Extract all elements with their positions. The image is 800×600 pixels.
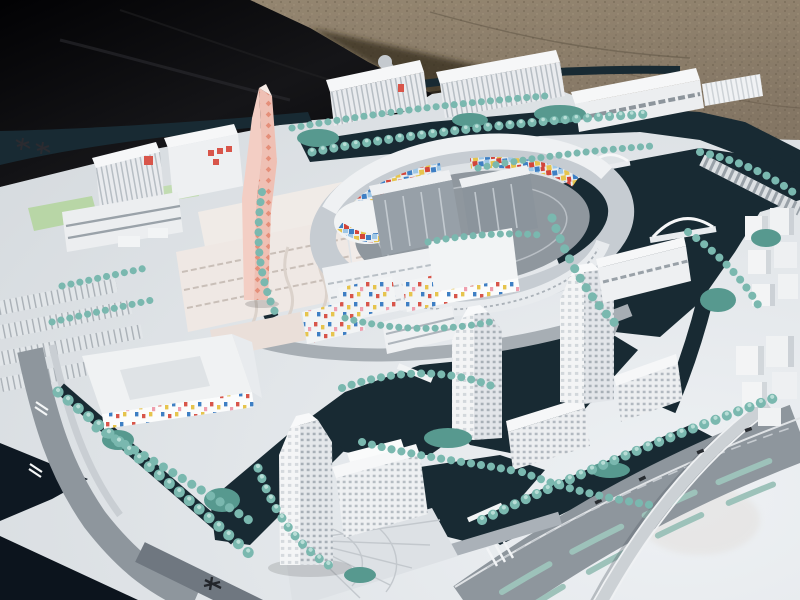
red-panel [144, 156, 153, 165]
model-photo-canvas [0, 0, 800, 600]
shed [118, 236, 140, 247]
shed [148, 228, 168, 238]
red-panel [398, 84, 404, 92]
photo-scale-model [0, 0, 800, 600]
